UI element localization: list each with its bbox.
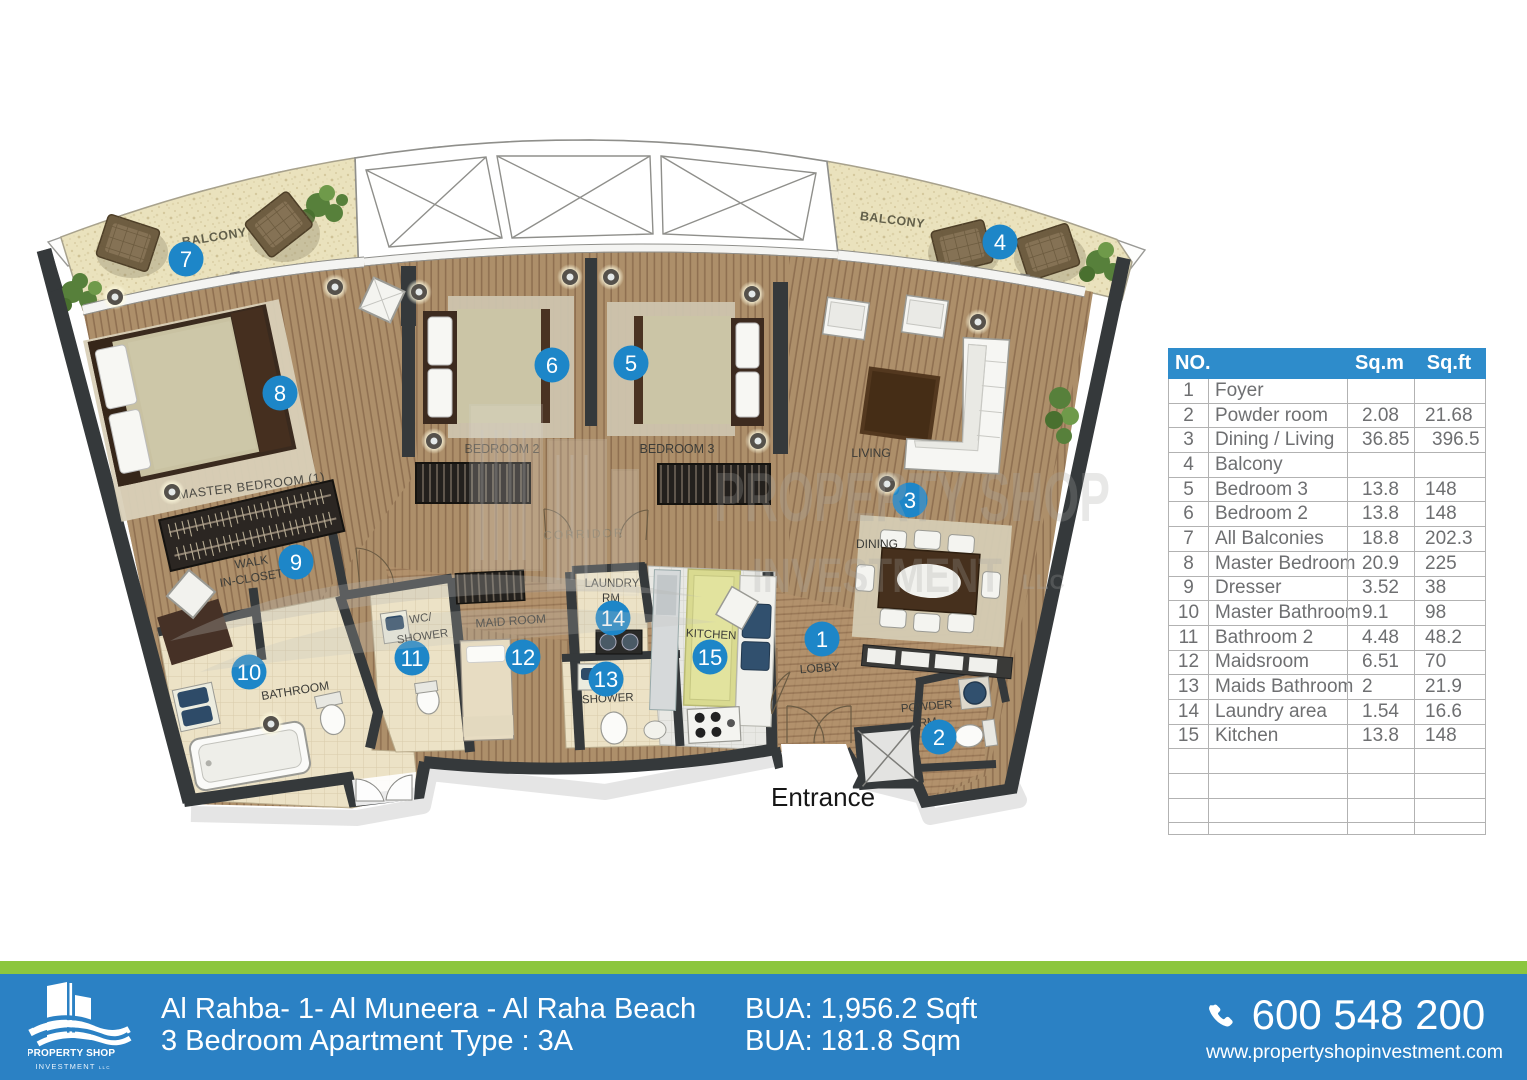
svg-text:12: 12 <box>511 645 535 670</box>
svg-text:PROPERTY SHOP: PROPERTY SHOP <box>28 1048 115 1059</box>
svg-text:1: 1 <box>816 627 828 652</box>
svg-text:6: 6 <box>546 353 558 378</box>
svg-text:LLC: LLC <box>1022 571 1066 594</box>
svg-text:Entrance: Entrance <box>771 782 875 812</box>
svg-text:7: 7 <box>180 247 192 272</box>
svg-text:INVESTMENT: INVESTMENT <box>752 550 1002 603</box>
svg-text:4: 4 <box>994 230 1006 255</box>
svg-text:15: 15 <box>698 645 722 670</box>
svg-text:DINING: DINING <box>856 537 898 551</box>
svg-text:13: 13 <box>594 667 618 692</box>
svg-text:11: 11 <box>401 646 424 671</box>
svg-text:8: 8 <box>274 381 286 406</box>
svg-text:9: 9 <box>290 550 302 575</box>
svg-text:INVESTMENT LLC: INVESTMENT LLC <box>35 1062 110 1071</box>
svg-text:5: 5 <box>625 351 637 376</box>
svg-text:BEDROOM 3: BEDROOM 3 <box>639 442 714 456</box>
svg-text:LOBBY: LOBBY <box>799 660 840 677</box>
svg-text:PROPERTY SHOP: PROPERTY SHOP <box>714 458 1110 536</box>
svg-text:2: 2 <box>933 725 945 750</box>
